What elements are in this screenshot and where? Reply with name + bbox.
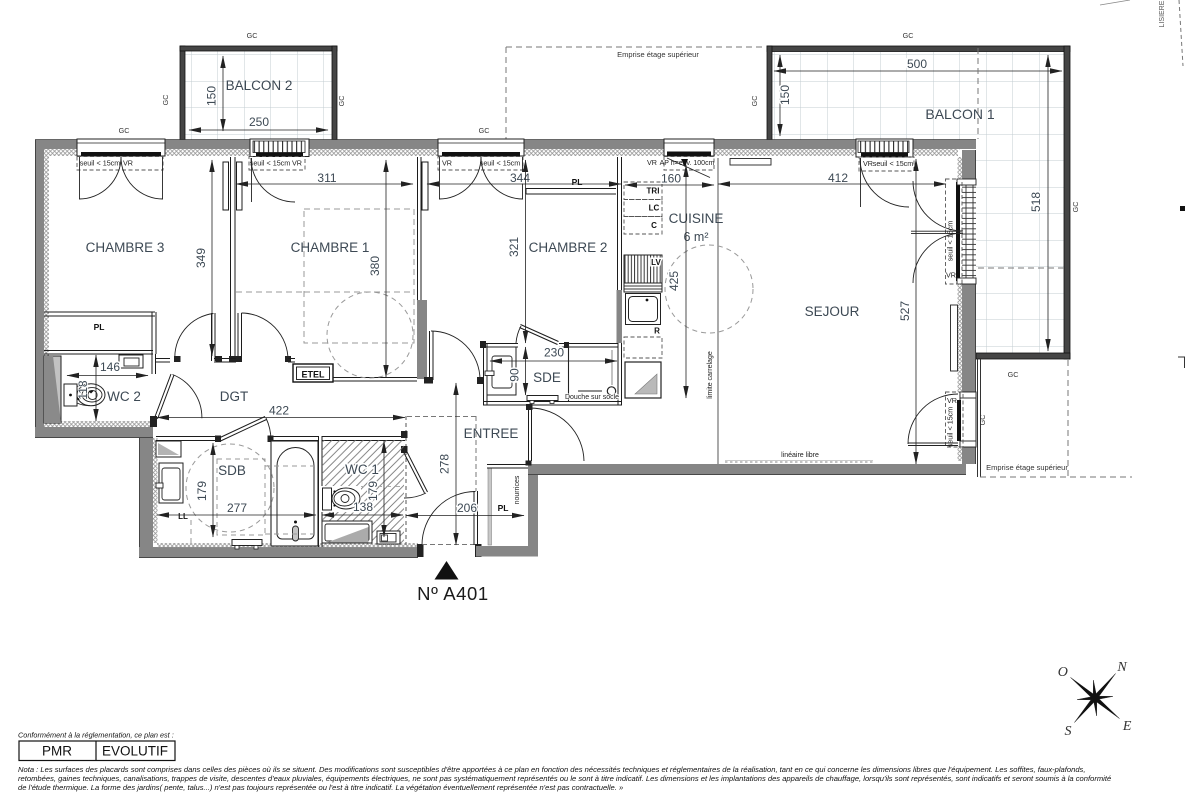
svg-text:PL: PL <box>94 322 105 332</box>
svg-text:VR: VR <box>946 271 956 280</box>
svg-text:DGT: DGT <box>220 389 249 404</box>
svg-text:VR: VR <box>292 159 302 168</box>
svg-text:LC: LC <box>649 204 660 213</box>
svg-text:Nº A401: Nº A401 <box>417 583 489 604</box>
svg-text:311: 311 <box>317 171 336 185</box>
svg-text:linéaire libre: linéaire libre <box>781 452 819 459</box>
svg-text:CHAMBRE 2: CHAMBRE 2 <box>529 240 608 255</box>
svg-text:GC: GC <box>161 95 170 106</box>
svg-text:GC: GC <box>337 96 346 107</box>
svg-text:138: 138 <box>353 500 373 514</box>
svg-text:S: S <box>1065 724 1072 739</box>
svg-text:SEJOUR: SEJOUR <box>805 304 860 319</box>
svg-text:GC: GC <box>479 126 490 135</box>
svg-text:422: 422 <box>269 404 289 418</box>
svg-text:de l'étude thermique. La forme: de l'étude thermique. La forme des jardi… <box>18 783 623 792</box>
svg-text:seuil < 15cm: seuil < 15cm <box>873 159 914 168</box>
svg-text:90: 90 <box>508 368 522 382</box>
svg-text:SDB: SDB <box>218 463 246 478</box>
svg-text:500: 500 <box>907 57 927 71</box>
svg-text:GC: GC <box>247 31 258 40</box>
svg-text:230: 230 <box>544 346 564 360</box>
svg-text:TRI: TRI <box>647 187 660 196</box>
svg-text:6 m²: 6 m² <box>684 230 709 244</box>
svg-text:ETEL: ETEL <box>301 370 325 380</box>
svg-text:VR: VR <box>442 159 452 168</box>
svg-text:PMR: PMR <box>42 744 72 759</box>
svg-text:Emprise étage supérieur: Emprise étage supérieur <box>617 50 699 59</box>
svg-text:349: 349 <box>194 248 208 268</box>
svg-text:GC: GC <box>1008 370 1019 379</box>
svg-text:WC 1: WC 1 <box>345 462 379 477</box>
svg-text:BALCON 1: BALCON 1 <box>925 106 994 122</box>
svg-text:GC: GC <box>903 31 914 40</box>
svg-text:seuil < 15cm: seuil < 15cm <box>250 159 291 168</box>
svg-text:179: 179 <box>195 481 209 501</box>
svg-text:N: N <box>1116 660 1127 675</box>
svg-text:seuil < 15cm: seuil < 15cm <box>946 407 955 448</box>
svg-text:150: 150 <box>205 86 219 106</box>
svg-text:ENTREE: ENTREE <box>464 426 519 441</box>
svg-text:206: 206 <box>457 501 477 515</box>
svg-text:C: C <box>651 221 657 230</box>
svg-text:GC: GC <box>978 415 987 426</box>
svg-text:WC 2: WC 2 <box>107 389 141 404</box>
svg-text:retombées, gaines techniques,: retombées, gaines techniques, canalisati… <box>18 774 1111 783</box>
svg-text:PL: PL <box>498 503 509 513</box>
svg-text:seuil < 15cm: seuil < 15cm <box>946 221 955 262</box>
svg-text:VR: VR <box>647 158 657 167</box>
svg-text:limite carrelage: limite carrelage <box>707 351 714 399</box>
svg-text:425: 425 <box>667 271 681 291</box>
svg-text:nourrices: nourrices <box>514 475 521 504</box>
svg-text:VR: VR <box>123 159 133 168</box>
svg-text:BALCON 2: BALCON 2 <box>226 78 293 93</box>
svg-text:277: 277 <box>227 501 247 515</box>
svg-text:Conformément à la réglementati: Conformément à la réglementation, ce pla… <box>18 731 174 740</box>
svg-text:Emprise étage supérieur: Emprise étage supérieur <box>986 463 1068 472</box>
svg-text:PL: PL <box>572 177 583 187</box>
svg-text:527: 527 <box>898 301 912 321</box>
svg-text:Douche sur socle: Douche sur socle <box>565 394 619 401</box>
svg-text:GC: GC <box>1071 202 1080 213</box>
svg-text:160: 160 <box>661 172 681 186</box>
svg-text:LISIERE: LISIERE <box>1159 0 1166 27</box>
svg-text:LL: LL <box>178 512 188 521</box>
svg-text:CHAMBRE 1: CHAMBRE 1 <box>291 240 370 255</box>
svg-text:278: 278 <box>438 454 452 474</box>
svg-text:CUISINE: CUISINE <box>669 211 724 226</box>
svg-text:146: 146 <box>100 360 120 374</box>
svg-text:GC: GC <box>119 126 130 135</box>
svg-text:EVOLUTIF: EVOLUTIF <box>102 744 168 759</box>
svg-text:250: 250 <box>249 115 269 129</box>
svg-text:CHAMBRE 3: CHAMBRE 3 <box>86 240 165 255</box>
svg-text:344: 344 <box>510 171 530 185</box>
svg-text:518: 518 <box>1029 192 1043 212</box>
svg-text:E: E <box>1122 719 1132 734</box>
svg-text:LV: LV <box>651 258 661 267</box>
svg-text:380: 380 <box>368 256 382 276</box>
svg-text:Nota : Les surfaces des placar: Nota : Les surfaces des placards sont co… <box>18 765 1085 774</box>
svg-text:GC: GC <box>750 96 759 107</box>
svg-text:O: O <box>1058 665 1068 680</box>
svg-text:VR: VR <box>947 396 957 405</box>
svg-text:321: 321 <box>507 237 521 257</box>
svg-text:150: 150 <box>778 85 792 105</box>
svg-text:VR: VR <box>863 159 873 168</box>
svg-text:seuil < 15cm: seuil < 15cm <box>80 159 121 168</box>
svg-text:412: 412 <box>828 171 848 185</box>
svg-text:179: 179 <box>366 481 380 501</box>
svg-text:SDE: SDE <box>533 370 561 385</box>
svg-text:118: 118 <box>76 380 90 399</box>
svg-text:seuil < 15cm: seuil < 15cm <box>480 159 521 168</box>
svg-text:R: R <box>654 327 660 336</box>
